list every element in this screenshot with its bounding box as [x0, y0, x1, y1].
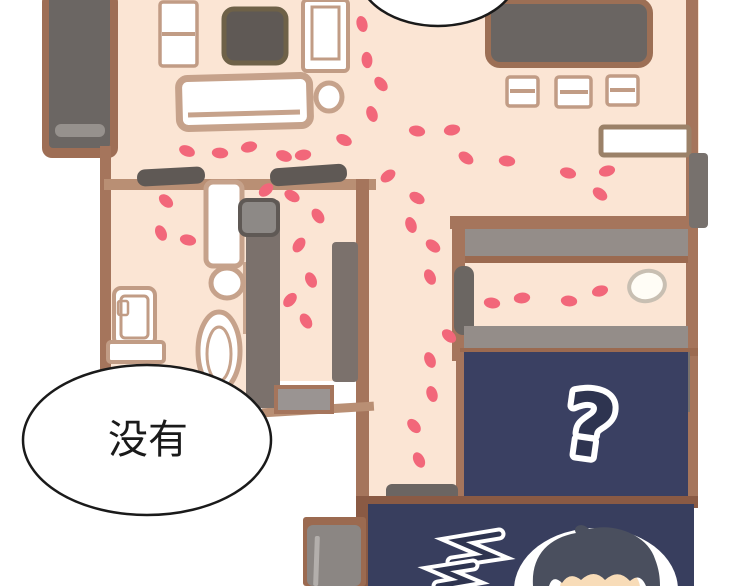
stool-2-line [560, 90, 588, 94]
sofa [178, 75, 310, 128]
side-table [316, 83, 342, 111]
stool-1-line [510, 89, 535, 93]
bedroom-closet-bar [465, 229, 688, 259]
comic-page: ? 没有 [0, 0, 750, 586]
desk [488, 1, 650, 65]
shelf-tall-left-line [162, 32, 195, 36]
wall-bedroom-top [450, 216, 698, 229]
stool-3-line [610, 88, 635, 92]
sliding-door-bar-a [137, 166, 206, 187]
bathroom-door-leaf [206, 182, 242, 266]
wall-shelf [601, 127, 689, 155]
comic-panel-scene: ? 没有 [0, 0, 750, 586]
wardrobe-left-top [240, 200, 278, 235]
ac-unit-tab [689, 153, 708, 228]
tv-unit [224, 9, 286, 63]
wardrobe-right [332, 242, 358, 382]
bath-shelf [108, 342, 164, 362]
piano-stripe [55, 124, 105, 137]
bedroom-door-tab [454, 266, 474, 335]
bedroom-closet-bar-line [465, 256, 688, 263]
wash-basin [211, 268, 243, 298]
speech-bubble-left-text: 没有 [108, 417, 188, 463]
bay-window [276, 387, 332, 412]
